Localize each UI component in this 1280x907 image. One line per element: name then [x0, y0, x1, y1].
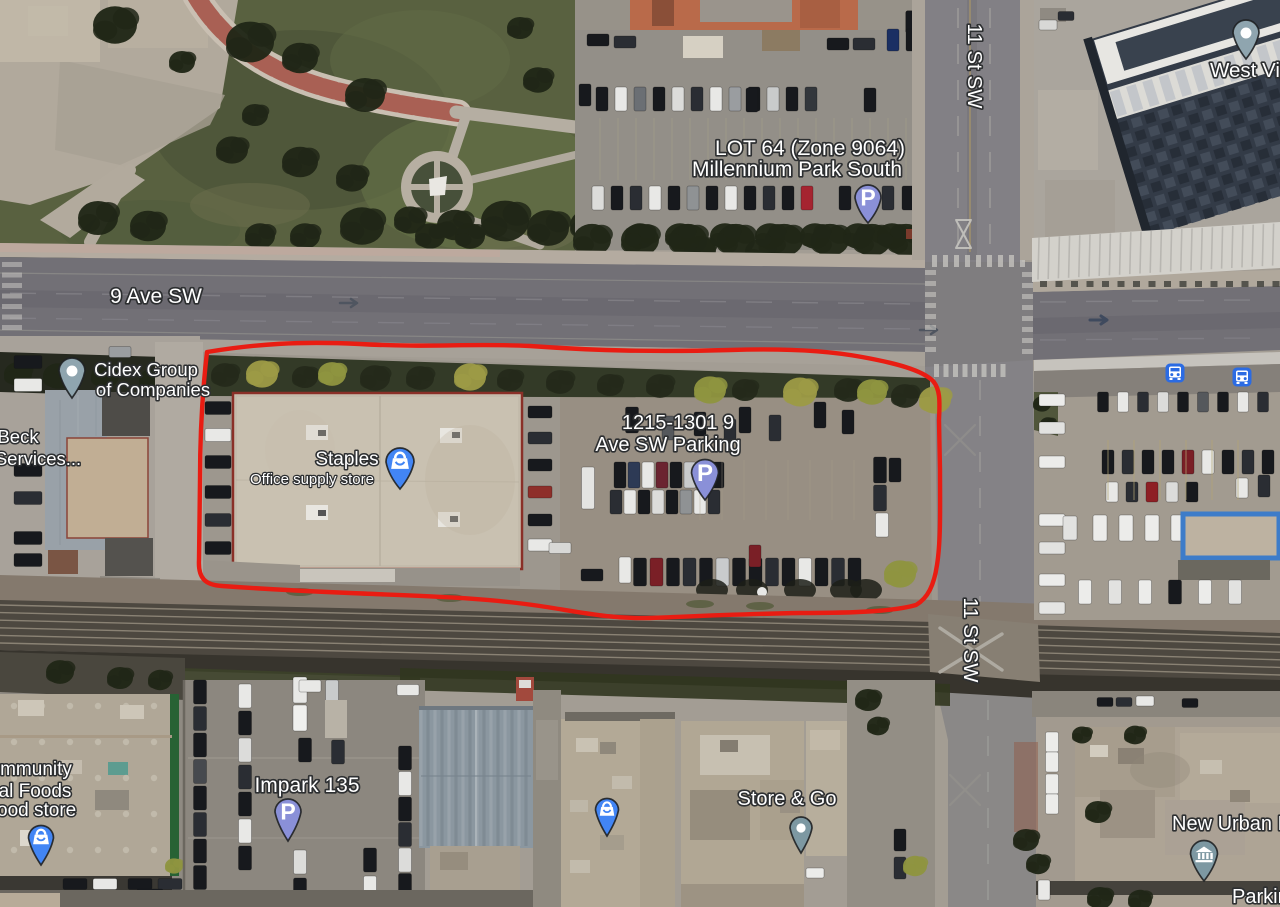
svg-text:Office supply store: Office supply store — [250, 471, 374, 488]
svg-text:Services...: Services... — [0, 448, 81, 469]
svg-text:Millennium Park South: Millennium Park South — [692, 158, 902, 181]
svg-text:Staples: Staples — [315, 449, 378, 470]
svg-text:Beck: Beck — [0, 426, 39, 447]
svg-text:Parkin: Parkin — [1232, 886, 1280, 907]
svg-text:Ave SW Parking: Ave SW Parking — [595, 434, 740, 456]
svg-text:Store & Go: Store & Go — [738, 788, 837, 810]
svg-text:food store: food store — [0, 800, 76, 821]
svg-text:P: P — [280, 799, 295, 825]
svg-text:9 Ave SW: 9 Ave SW — [110, 285, 202, 308]
svg-text:11 St SW: 11 St SW — [959, 597, 982, 683]
svg-text:mmunity: mmunity — [0, 759, 72, 780]
svg-text:of Companies: of Companies — [96, 379, 210, 400]
svg-text:P: P — [697, 460, 713, 487]
svg-text:P: P — [860, 185, 875, 211]
svg-text:1215-1301 9: 1215-1301 9 — [622, 412, 734, 434]
svg-text:al Foods: al Foods — [0, 781, 71, 802]
svg-text:West Vil: West Vil — [1210, 59, 1280, 82]
svg-text:Impark 135: Impark 135 — [254, 774, 359, 797]
svg-text:Cidex Group: Cidex Group — [94, 359, 198, 380]
svg-text:11 St SW: 11 St SW — [963, 23, 986, 109]
svg-text:LOT 64 (Zone 9064): LOT 64 (Zone 9064) — [715, 137, 905, 160]
svg-text:New Urban Li: New Urban Li — [1172, 813, 1280, 835]
